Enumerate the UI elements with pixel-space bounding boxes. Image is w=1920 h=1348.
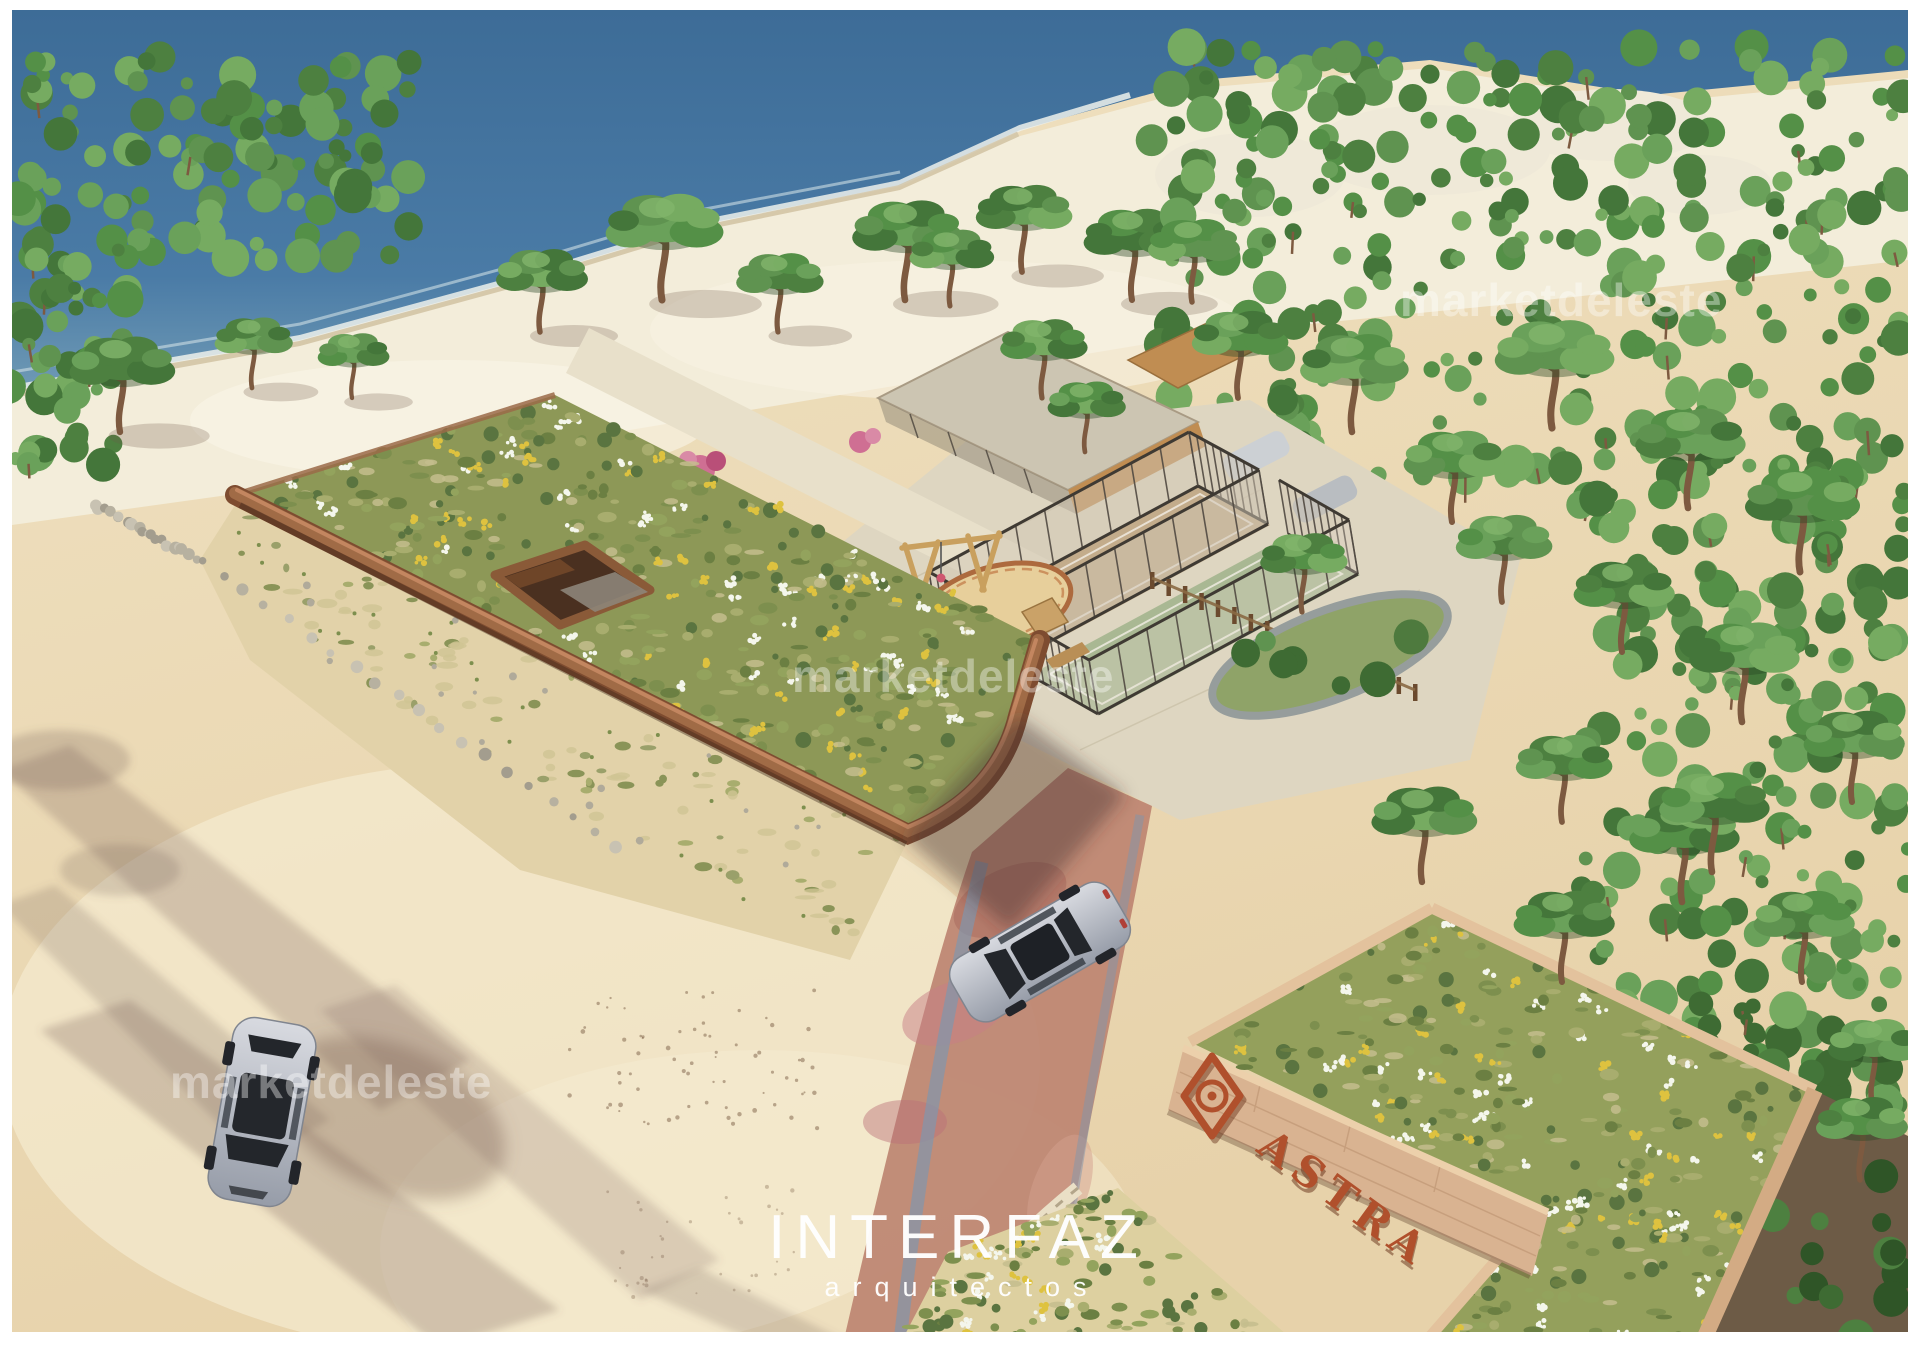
- aerial-render-page: ASTRA ASTRA: [0, 0, 1920, 1348]
- studio-name: INTERFAZ: [768, 1203, 1148, 1272]
- interfaz-logo: INTERFAZ arquitectos: [768, 1203, 1148, 1302]
- watermark-center: marketdeleste: [792, 650, 1114, 702]
- studio-subtitle: arquitectos: [824, 1272, 1099, 1302]
- child-figure: [937, 574, 946, 583]
- render-canvas: ASTRA ASTRA: [0, 0, 1920, 1348]
- watermark-bottom-left: marketdeleste: [170, 1056, 492, 1108]
- watermark-top-right: marketdeleste: [1400, 274, 1722, 326]
